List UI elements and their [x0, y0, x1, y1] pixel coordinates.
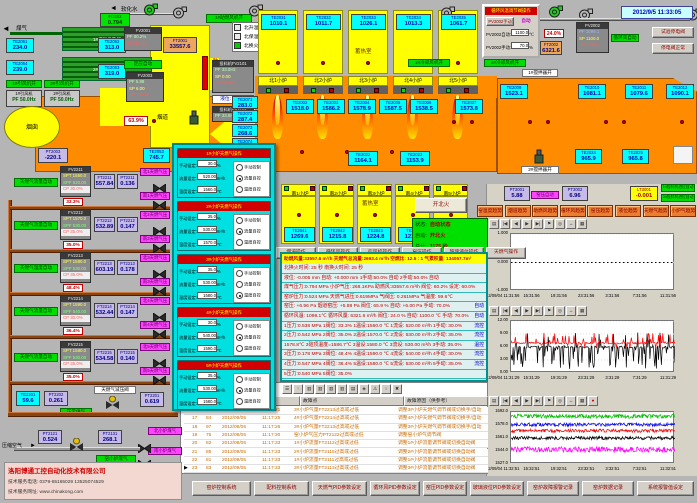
panel-icon[interactable]: ▤	[348, 384, 358, 394]
measure-icon[interactable]: ↔	[566, 219, 576, 229]
pt-value: 0.147	[118, 310, 137, 317]
grid-icon[interactable]: ▥	[337, 384, 347, 394]
ft-id: FT2215	[95, 350, 114, 356]
port-on-indicator	[446, 88, 451, 93]
crown-temp-tag-value: 1578.9	[349, 106, 375, 113]
alarm-row[interactable]: 17842012/09/0511:17:254#小炉气量FT2214过高或过低调…	[184, 415, 488, 423]
radio-icon	[236, 270, 243, 277]
pt-value: 0.140	[118, 356, 137, 363]
field-row: 温度设定:1590.0℃	[179, 345, 231, 356]
field-unit: %	[217, 269, 221, 274]
alarm-cell: 调整3#小炉天燃气调节阀或切换手/自动	[398, 424, 486, 432]
field-label: PV2002自动:	[486, 32, 511, 37]
step-back-icon[interactable]: ◀	[511, 219, 521, 229]
pt-value: 0.136	[118, 181, 137, 188]
grid-icon[interactable]: ▥	[315, 384, 325, 394]
pressure-auto-label: 定压自动	[124, 60, 162, 69]
mode-radio[interactable]: 手动控制	[236, 376, 269, 385]
north-gas-press-label: 北5天燃气压	[140, 343, 170, 351]
gas-auto-mode-label: 天燃气流量自动	[14, 307, 58, 316]
north-gas-press-label: 北4天燃气压	[140, 297, 170, 305]
mode-radio[interactable]: 流量自控	[236, 281, 269, 290]
alarm-row[interactable]: 22812012/09/0511:17:331#小炉流量FT2111过高或过低调…	[184, 457, 488, 465]
section-title: 4#小炉天燃气操作	[178, 308, 270, 317]
panel-row-text: 液位: -0.005 mm 自动: +0.000 mm 1手动:50.0% 自动…	[284, 276, 439, 281]
north-gas-press-label: 北2天燃气压	[140, 211, 170, 219]
diamond-icon[interactable]: ◈	[359, 384, 369, 394]
alarm-row[interactable]: 19752012/09/0511:17:30窑小炉气压力PT2122过高或过低调…	[184, 432, 488, 440]
field-input[interactable]: 530.00	[197, 279, 217, 286]
gas-inlet-press-tag-value: 0.619	[141, 399, 163, 406]
field-label: 温度设定:	[179, 348, 197, 353]
field-unit: ℃	[217, 242, 222, 247]
mode-radio[interactable]: 温度自控	[236, 186, 269, 195]
waist-temp-tag-value: 1153.9	[401, 158, 429, 165]
field-input[interactable]: 1570.0	[197, 239, 217, 246]
north-port-label: 北4小炉	[393, 76, 433, 86]
field-row: 温度设定:1570.0℃	[179, 239, 231, 250]
north-coal-gas-label: 北小炉煤气	[148, 427, 182, 435]
pt-id: PT2213	[118, 261, 137, 267]
y-tick-label: 1592.0	[488, 408, 508, 414]
kiln-press-auto-label: 窑压自动	[531, 191, 559, 199]
export-icon[interactable]: ▦	[577, 396, 587, 406]
bottom-nav-button[interactable]: 窑压PID参数设定	[423, 481, 467, 496]
south-regen-temp-tag: TE20411269.6	[284, 227, 315, 242]
gas-branch-pipe	[10, 381, 170, 385]
field-label: PV2002手动:	[486, 45, 511, 50]
pt-id: PT2211	[118, 175, 137, 181]
step-forward-icon[interactable]: ▶	[522, 396, 532, 406]
field-row: 流量设定:530.00m³/h	[179, 279, 231, 290]
arrow-right-icon: ►	[30, 443, 38, 451]
gas-valve-icon	[153, 355, 166, 364]
field-input[interactable]: 1580.0	[197, 398, 217, 405]
mode-radio[interactable]: 温度自控	[236, 292, 269, 301]
print-icon[interactable]: ⚑	[544, 396, 554, 406]
gas-pressure-tag: PT22130.178	[117, 260, 138, 275]
radio-label: 温度自控	[244, 293, 261, 298]
gas-valve-icon	[153, 223, 166, 232]
panel-row: 北换火时间: 25 秒 南换火时间: 25 秒	[282, 264, 486, 274]
status-row: 自动:开北火	[415, 232, 485, 242]
go-first-icon[interactable]: |◀	[500, 306, 510, 316]
controller-spt: SPT 1560.0	[61, 173, 90, 180]
y-tick-label: 6.00	[488, 343, 508, 349]
operation-button[interactable]: 天燃气操作	[486, 247, 526, 259]
trend-button[interactable]: 液位趋势	[615, 205, 641, 217]
north-gas-press-label: 北3天燃气压	[140, 254, 170, 262]
gas-pressure-tag: PT22110.136	[117, 174, 138, 189]
gas-auto-mode-label: 天燃气温度自动	[14, 264, 58, 273]
north-port-label: 北3小炉	[348, 76, 388, 86]
regen-dot	[373, 213, 377, 217]
alarm-cell: 85	[206, 449, 220, 457]
radio-icon	[236, 387, 243, 394]
gas-flow-controller: FV2215SPT 1580.0SPF 530.00CP 35.0%	[60, 341, 91, 372]
regen-temp-tag: TE20341013.3	[396, 14, 431, 30]
field-input[interactable]: 30.0	[197, 319, 217, 326]
stop-icon[interactable]: ●	[588, 396, 598, 406]
pv2002-manual-input[interactable]: 70.0	[511, 42, 529, 49]
panel-row: 1压力:0.538 MPa 1阀位: 33.3% 1温设:1560.0 ℃ 1流…	[282, 322, 486, 332]
field-input[interactable]: 1580.0	[197, 292, 217, 299]
field-row: 流量设定:520.00m³/h	[179, 173, 231, 184]
flue-pressure-tag-value: -220.1	[39, 155, 67, 162]
mode-radio[interactable]: 流量自控	[236, 228, 269, 237]
trend-button[interactable]: 窑温度趋势	[477, 205, 503, 217]
pt-value: 0.178	[118, 267, 137, 274]
regen-dot	[321, 61, 325, 65]
alarm-cell: 2012/09/05	[222, 432, 260, 440]
mode-label: 北换火	[244, 44, 258, 49]
radio-label: 温度自控	[244, 240, 261, 245]
expand-icon[interactable]: ↕	[381, 384, 391, 394]
panel-icon[interactable]: ▤	[489, 306, 499, 316]
gas-flow-controller: FV2212SPT 1570.0SPF 530.00CP 35.0%	[60, 209, 91, 240]
crown-temp-tag: TE20061538.5	[410, 99, 438, 114]
port-indicators	[438, 86, 478, 94]
ft-value: 532.89	[95, 224, 114, 231]
process-data-panel: 助燃风量:33557.6 m³/h 天燃气总流量:2693.4 m³/h 空燃比…	[280, 252, 488, 382]
thermocouple-dot	[528, 120, 532, 124]
panel-icon[interactable]: ▤	[489, 219, 499, 229]
flue-label: 烟道	[157, 113, 179, 122]
go-last-icon[interactable]: ▶|	[533, 219, 543, 229]
south-regenerator: TE20421215.8	[319, 196, 354, 244]
mode-radio[interactable]: 流量自控	[236, 334, 269, 343]
field-input[interactable]: 35.0	[197, 213, 217, 220]
radio-dot	[239, 178, 241, 180]
field-unit: m³/h	[217, 176, 225, 181]
alarm-row[interactable]: 18972012/09/0511:17:263#小炉气量FT2213过高或过低调…	[184, 424, 488, 432]
x-tick-label: 3:32:51	[605, 466, 633, 472]
field-input[interactable]: 1590.0	[197, 345, 217, 352]
panel-row-text: 4压力:0.547 MPa 4阀位: 36.4% 5温设:1580.0 ℃ 5流…	[284, 362, 462, 367]
gas-valve-position: 33.3%	[63, 198, 83, 206]
gas-temp-tag: TE220159.6	[16, 391, 40, 406]
end-temp-tag: TE2025965.8	[622, 149, 649, 164]
panel-row-badge: 流控	[474, 360, 484, 370]
x-tick-label: 11:31:56	[660, 293, 688, 299]
measure-icon[interactable]: ↔	[566, 306, 576, 316]
field-input[interactable]: 530.00	[197, 226, 217, 233]
bottom-nav-button[interactable]: 配料控制系统	[254, 481, 309, 496]
field-input[interactable]: 35.0	[197, 372, 217, 379]
bottom-nav-button[interactable]: 系统报警值设定	[637, 481, 694, 496]
mode-checkbox	[234, 24, 241, 31]
radio-dot	[239, 390, 241, 392]
zoom-icon[interactable]: ◎	[555, 396, 565, 406]
radio-label: 流量自控	[244, 282, 261, 287]
grid-icon[interactable]: ▥	[326, 384, 336, 394]
side-temp-tag: TE2072287.4	[232, 110, 258, 123]
pv2002-cp: CP 70.0%	[577, 42, 608, 49]
gas-main-pipe	[8, 412, 178, 417]
field-row: 手动设定:35.0%	[179, 372, 231, 383]
regen-temp-tag-value: 1011.7	[307, 21, 340, 28]
export-icon[interactable]: ▦	[577, 219, 587, 229]
alarm-row[interactable]: 21852012/09/0511:17:332#小炉流量FT2115过高或过低调…	[184, 449, 488, 457]
field-unit: ℃	[217, 295, 222, 300]
mode-radio[interactable]: 温度自控	[236, 239, 269, 248]
field-input[interactable]: 1560.0	[197, 186, 217, 193]
side-temp-tag-value: 283.0	[233, 103, 257, 110]
alarm-cell: 3#小炉气量FT2213过高或过低	[294, 407, 396, 415]
kiln-press-tag-value: 5.88	[505, 193, 529, 200]
go-last-icon[interactable]: ▶|	[533, 306, 543, 316]
radio-label: 手动控制	[244, 165, 261, 170]
side-temp-tag: TE2073268.6	[232, 124, 258, 137]
pv2002-auto-row: PV2002自动:1100.0℃	[486, 29, 540, 38]
close-icon[interactable]: ✖	[392, 384, 402, 394]
step-forward-icon[interactable]: ▶	[522, 306, 532, 316]
field-input[interactable]: 520.00	[197, 173, 217, 180]
alarm-cell: 2012/09/05	[222, 415, 260, 423]
stirrer-motor-icon	[533, 149, 545, 164]
field-row: 手动设定:35.0%	[179, 213, 231, 224]
trend-button[interactable]: 助燃风趋势	[532, 205, 558, 217]
gas-flow-controller: FV2214SPT 1590.0SPF 540.00CP 30.0%	[60, 295, 91, 326]
bottom-nav-button[interactable]: 窑炉控制系统	[192, 481, 251, 496]
print-icon[interactable]: ⚑	[544, 306, 554, 316]
alarm-cell: 20	[192, 440, 204, 448]
mode-checkbox	[234, 42, 241, 49]
gas-flow-controller: FV2213SPT 1580.0SPF 530.00CP 35.0%	[60, 252, 91, 283]
south-port-label: 南4小炉	[395, 184, 430, 196]
port-off-indicator	[329, 88, 334, 93]
go-first-icon[interactable]: |◀	[500, 219, 510, 229]
print-icon[interactable]: ⚑	[544, 219, 554, 229]
gas-branch-pipe	[10, 335, 170, 339]
mode-radio[interactable]: 温度自控	[236, 398, 269, 407]
field-unit: m³/h	[217, 229, 225, 234]
crown-temp-tag-value: 1573.8	[456, 106, 482, 113]
pv2002-display: PV2002PF 1098.1SP 1100.0CP 70.0%	[576, 22, 609, 53]
radio-icon	[236, 217, 243, 224]
bottom-nav-button[interactable]: 窑炉故障报警记录	[527, 481, 579, 496]
field-input[interactable]: 35.0	[197, 266, 217, 273]
end-temp-tag-value: 965.8	[623, 156, 648, 163]
alarm-cell: 17	[192, 415, 204, 423]
step-back-icon[interactable]: ◀	[511, 306, 521, 316]
ft-id: FT2212	[95, 218, 114, 224]
flue-press-tag: PT30026.96	[562, 186, 588, 201]
section-title: 2#小炉天燃气操作	[178, 202, 270, 211]
cooler2-status-label: 2#冷却风机开	[484, 59, 526, 67]
kiln-press-tag: PT30015.88	[504, 186, 530, 201]
radio-icon	[236, 376, 243, 383]
pt-id: PT2215	[118, 350, 137, 356]
bottom-nav-button[interactable]: 窑炉数据记录	[582, 481, 634, 496]
trend-button[interactable]: 天燃气趋势	[643, 205, 669, 217]
power-valve-normal-button[interactable]: 停电阀正常	[652, 43, 694, 54]
bottom-nav-button[interactable]: 玻璃液位PID参数设定	[470, 481, 524, 496]
field-label: 流量设定:	[179, 335, 197, 340]
sort-icon[interactable]: ↑	[293, 384, 303, 394]
trend-button[interactable]: 循环风趋势	[560, 205, 586, 217]
mode-checkbox	[234, 33, 241, 40]
fan1-status-label: 1#引风机开	[6, 80, 42, 88]
mode-radio-group: 手动控制流量自控温度自控	[233, 267, 270, 303]
fire-direction-button[interactable]: 开北火	[415, 198, 467, 213]
field-unit: %	[529, 45, 533, 50]
field-unit: ℃	[217, 189, 222, 194]
regen-dot	[297, 213, 301, 217]
small-panel	[673, 146, 693, 164]
panel-icon[interactable]: ▤	[489, 396, 499, 406]
export-icon[interactable]: ▦	[577, 306, 587, 316]
fan2-box: 2#引风机PF 50.0Hz	[44, 90, 80, 107]
panel-row: 窑炉压力:0.524 MPa 天燃气进压:0.619MPa 气阀压: 0.261…	[282, 293, 486, 303]
flue-temp-tag-value: 313.0	[99, 45, 125, 52]
radio-icon	[236, 281, 243, 288]
pv2002-auto-input[interactable]: 1100.0	[511, 29, 529, 36]
gas-auto-mode-label: 天燃气流量自动	[14, 178, 58, 187]
alarm-cell: 84	[206, 415, 220, 423]
flue-pressure-tag: PT2003-220.1	[38, 148, 68, 163]
pt-id: PT2212	[118, 218, 137, 224]
alarm-cell: 83	[206, 465, 220, 473]
pv2002-manual-button[interactable]: PV2002手动	[486, 17, 514, 26]
mode-radio-group: 手动控制流量自控温度自控	[233, 214, 270, 250]
mode-radio[interactable]: 手动控制	[236, 164, 269, 173]
grid-icon[interactable]: ▥	[304, 384, 314, 394]
flue-temp-tag-value: 745.7	[144, 155, 169, 162]
step-back-icon[interactable]: ◀	[511, 396, 521, 406]
x-tick-label: 7:31:56	[633, 293, 661, 299]
fan-flow-tag-id: FT2002	[541, 42, 561, 48]
test-power-valve-button[interactable]: 试验停电阀	[652, 27, 694, 38]
thermocouple-dot	[546, 120, 550, 124]
gas-flow-tag: FI22020.794	[100, 13, 130, 27]
regen-dot	[456, 61, 460, 65]
mode-radio[interactable]: 温度自控	[236, 345, 269, 354]
fan-flow-tag: FT20026321.6	[540, 41, 562, 55]
alarm-row[interactable]: 20822012/09/0511:17:331#小炉流量FT2112过高或过低调…	[184, 440, 488, 448]
air-press-tag2-value: 268.1	[99, 437, 121, 444]
mode-radio[interactable]: 流量自控	[236, 387, 269, 396]
regen-temp-tag: TE20351061.7	[441, 14, 476, 30]
alarm-cell: 2012/09/05	[222, 424, 260, 432]
y-tick-label: 1544.0	[488, 447, 508, 453]
alarm-row[interactable]: ▶23832012/09/0511:17:333#小炉流量FT2113过高或过低…	[184, 465, 488, 473]
pt-value: 0.147	[118, 224, 137, 231]
field-input[interactable]: 30.0	[197, 160, 217, 167]
port-on-indicator	[311, 88, 316, 93]
radio-icon	[236, 239, 243, 246]
panel-row-badge: 温控	[474, 341, 484, 351]
go-first-icon[interactable]: |◀	[500, 396, 510, 406]
gas-temp-tag-value: 59.6	[17, 398, 39, 405]
gas-pressure-tag: PT22140.147	[117, 303, 138, 318]
fv2003-cp: CP 78.0%	[127, 92, 163, 99]
alarm-cell: 窑小炉气压力PT2122过高或过低	[294, 432, 396, 440]
panel-row-badge: 流控	[474, 322, 484, 332]
row-marker-icon: ▶	[184, 465, 190, 473]
alarm-header-fault: 故障点	[300, 396, 404, 406]
company-name: 洛阳博通工控自动化技术有限公司	[8, 465, 178, 475]
radio-label: 手动控制	[244, 271, 261, 276]
field-input[interactable]: 530.00	[197, 385, 217, 392]
panel-row: 2压力:0.542 MPa 2阀位: 35.0% 2温设:1570.0 ℃ 2流…	[282, 331, 486, 341]
go-last-icon[interactable]: ▶|	[533, 396, 543, 406]
fan-valve-position: 24.0%	[544, 29, 564, 38]
gas-flow-tag: FT2211557.84	[94, 174, 115, 189]
pump-icon	[548, 5, 563, 18]
mode-radio[interactable]: 手动控制	[236, 323, 269, 332]
y-tick-label: 9.00	[488, 330, 508, 336]
neck-temp-tag-value: 1090.1	[667, 91, 693, 98]
radio-icon	[236, 186, 243, 193]
gas-valve-icon	[153, 266, 166, 275]
mode-radio[interactable]: 手动控制	[236, 217, 269, 226]
bottom-nav-button[interactable]: 循环风PID参数设定	[370, 481, 420, 496]
alert-icon[interactable]: ⚠	[370, 384, 380, 394]
air-damper-bar	[202, 56, 208, 90]
stirrer2-status-label: 2#搅拌器开	[521, 166, 559, 174]
thermocouple-dot	[604, 120, 608, 124]
port-off-indicator	[464, 88, 469, 93]
gas-reducer-valve-icon	[106, 396, 119, 409]
compressed-air-label: 压缩空气	[2, 442, 30, 450]
field-input[interactable]: 540.00	[197, 332, 217, 339]
radio-label: 手动控制	[244, 377, 261, 382]
zoom-icon[interactable]: ◎	[555, 219, 565, 229]
end-temp-tag-value: 965.9	[576, 156, 601, 163]
alarm-cell: 82	[206, 440, 220, 448]
alarm-cell: 11:17:33	[262, 449, 292, 457]
crown-temp-tag-value: 1587.5	[380, 106, 406, 113]
field-row: 流量设定:530.00m³/h	[179, 226, 231, 237]
trend-button[interactable]: 小炉气趋势	[670, 205, 696, 217]
bottom-nav-button[interactable]: 天燃气PID参数设定	[312, 481, 367, 496]
field-label: 手动设定:	[179, 216, 197, 221]
gas-valve-icon	[153, 283, 166, 292]
gas-popup-section: 3#小炉天燃气操作手动设定:35.0%流量设定:530.00m³/h温度设定:1…	[177, 254, 271, 304]
menu-icon[interactable]: ☰	[282, 384, 292, 394]
feeder2-auto-label: 2#投料机进位自动	[661, 194, 695, 202]
mode-radio[interactable]: 手动控制	[236, 270, 269, 279]
radio-dot	[239, 337, 241, 339]
field-label: 流量设定:	[179, 229, 197, 234]
measure-icon[interactable]: ↔	[566, 396, 576, 406]
zoom-icon[interactable]: ◎	[555, 306, 565, 316]
regen-dot	[366, 61, 370, 65]
field-unit: %	[217, 322, 221, 327]
regen-temp-tag: TE20321011.7	[306, 14, 341, 30]
gas-operation-popup: 1#小炉天燃气操作手动设定:30.0%流量设定:520.00m³/h温度设定:1…	[172, 143, 276, 411]
radio-icon	[236, 345, 243, 352]
x-tick-label: 15:31:56	[523, 293, 551, 299]
step-forward-icon[interactable]: ▶	[522, 219, 532, 229]
alarm-cell: 调整1#小炉流量调节阀或切换自动阀	[398, 457, 486, 465]
pv2002-mode-label: 自动	[517, 18, 535, 25]
field-unit: ℃	[217, 348, 222, 353]
gas-popup-section: 2#小炉天燃气操作手动设定:35.0%流量设定:530.00m³/h温度设定:1…	[177, 201, 271, 251]
panel-row: 循环风温: 1098.1℃ 循环风量: 6321.6 m³/h 阀位: 24.0…	[282, 312, 486, 322]
x-tick-label: 19:31:29	[551, 375, 579, 381]
trend-button[interactable]: 窑压趋势	[587, 205, 613, 217]
trend-button[interactable]: 烟道趋势	[505, 205, 531, 217]
port-indicators	[258, 86, 298, 94]
alarm-cell: 11:17:30	[262, 432, 292, 440]
combustion-air-flow-tag: FT200133557.6	[163, 37, 197, 53]
gas-flow-tag: FT2212532.89	[94, 217, 115, 232]
mode-radio[interactable]: 流量自控	[236, 175, 269, 184]
mode-radio-group: 手动控制流量自控温度自控	[233, 373, 270, 409]
gas-valve-position: 35.0%	[63, 241, 83, 249]
